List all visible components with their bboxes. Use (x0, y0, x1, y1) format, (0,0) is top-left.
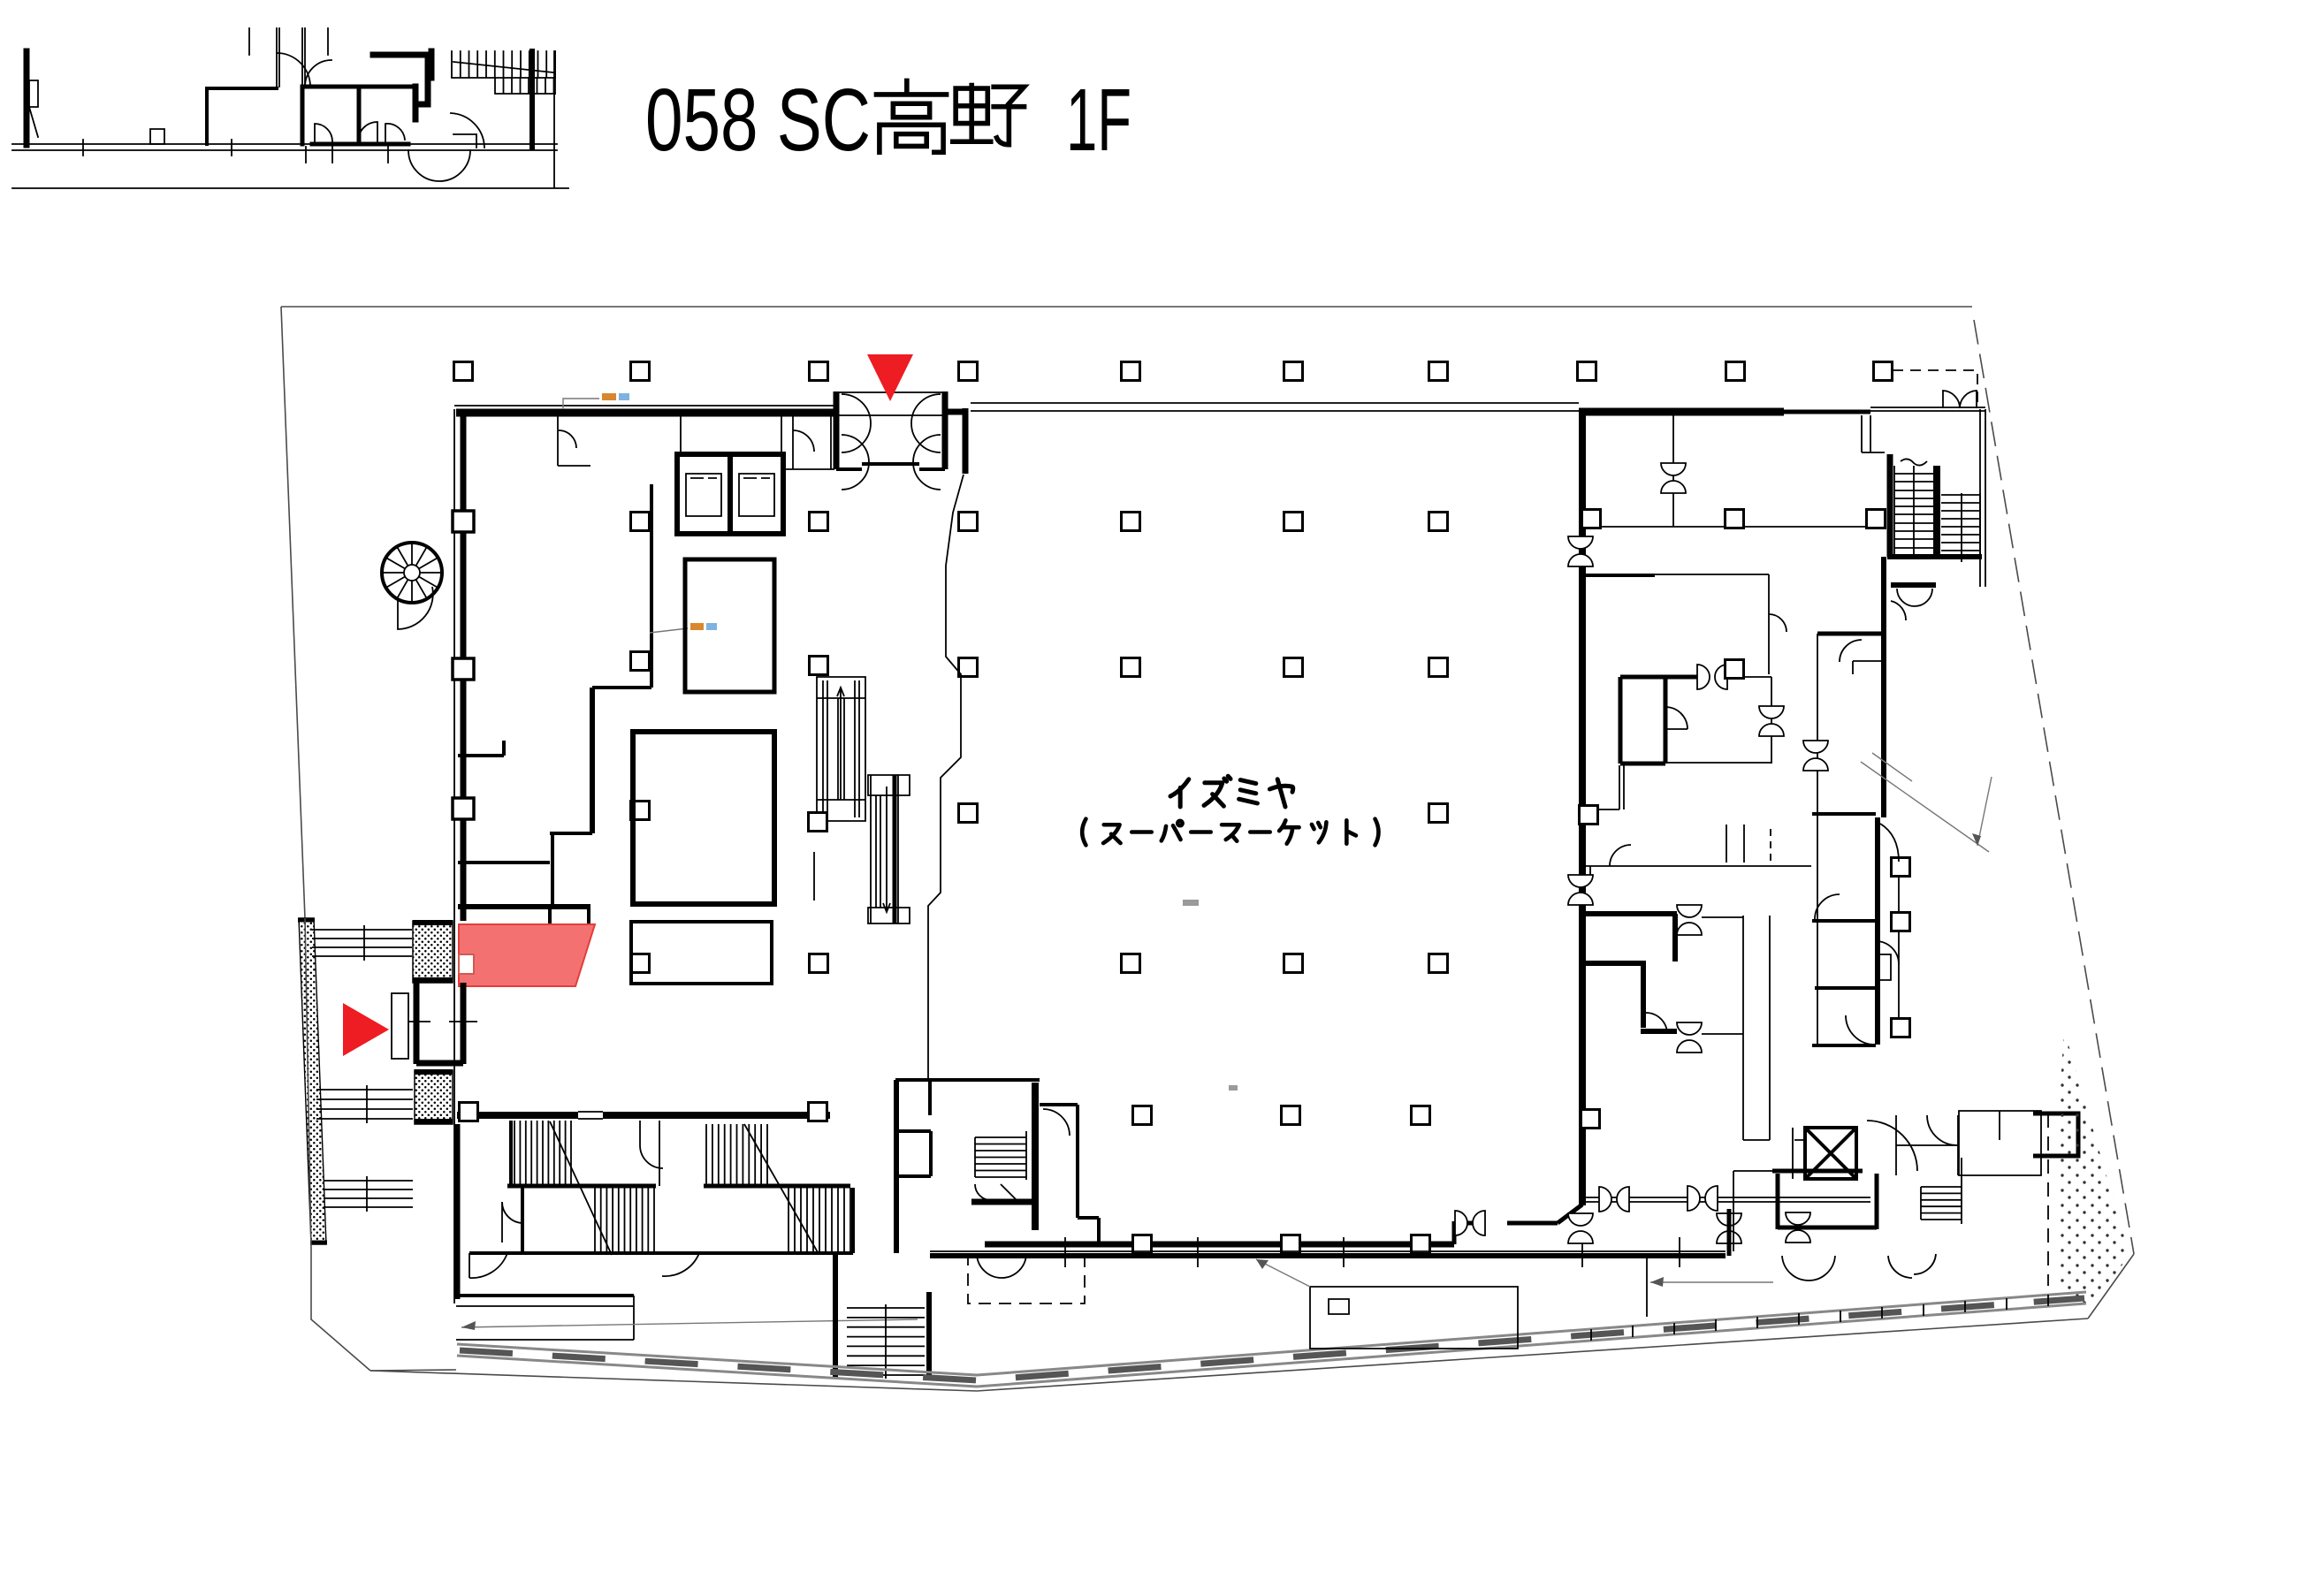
svg-text:058 SC: 058 SC (645, 71, 871, 170)
svg-text:1F: 1F (1066, 71, 1131, 170)
